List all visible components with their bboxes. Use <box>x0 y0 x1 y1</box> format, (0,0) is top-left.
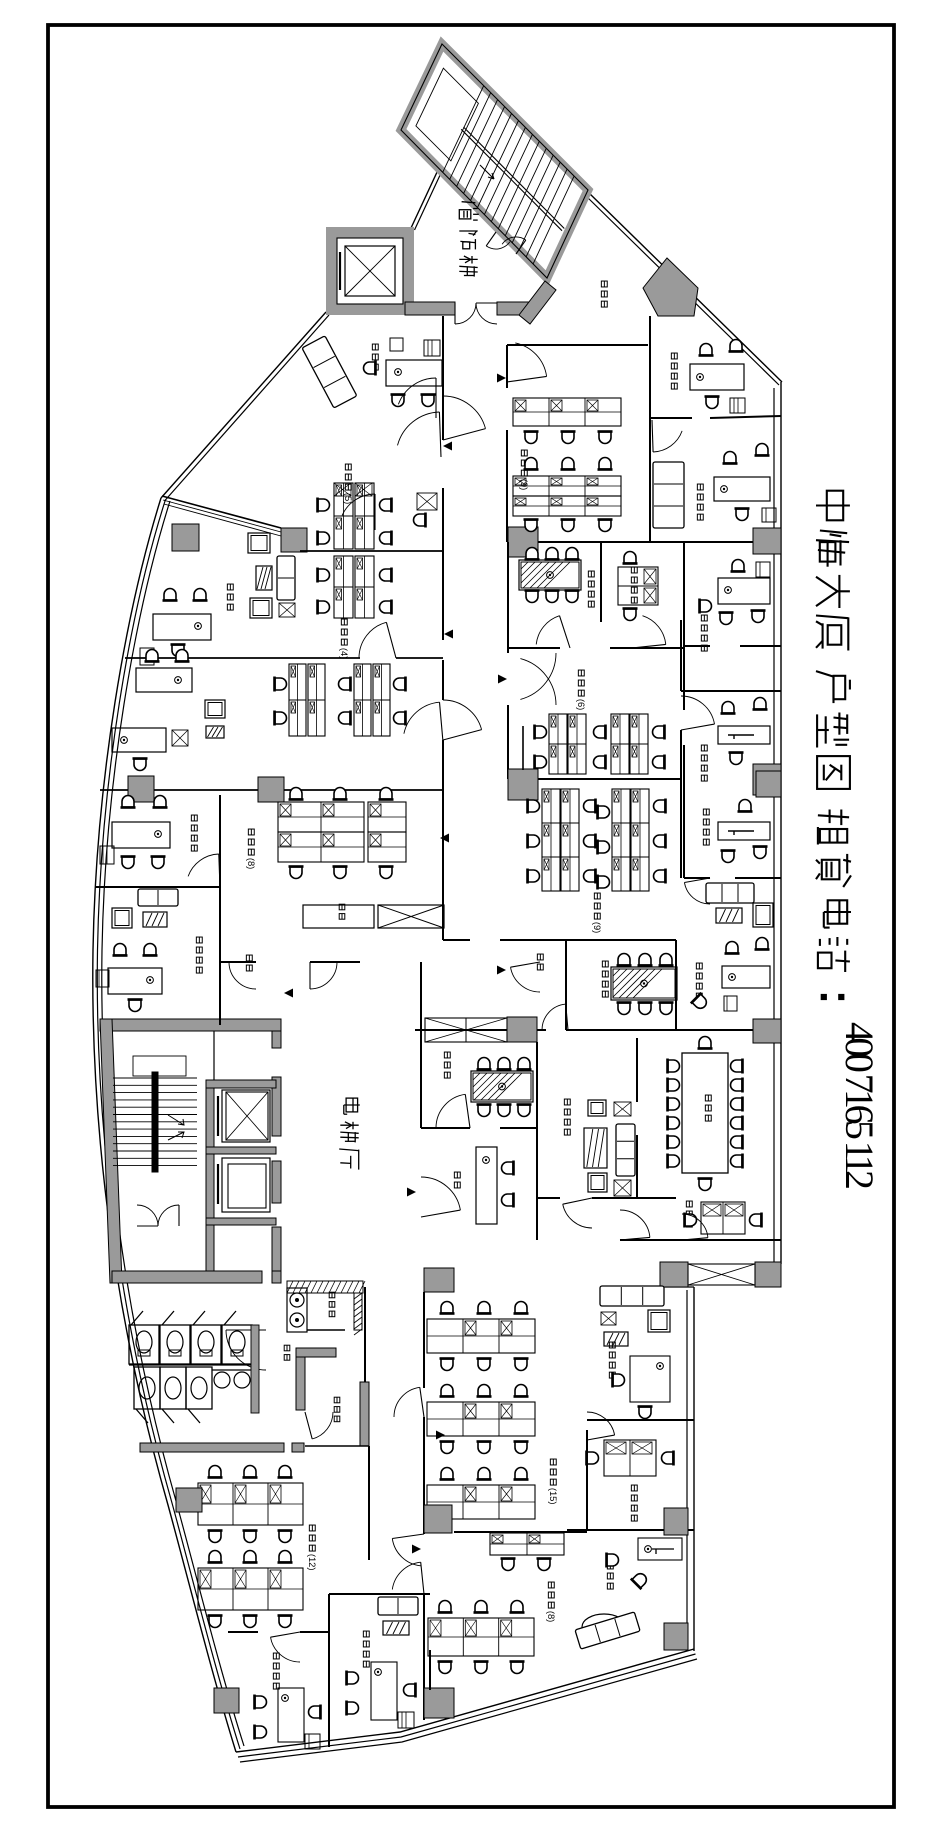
svg-text:(9): (9) <box>592 922 603 933</box>
svg-text:(8): (8) <box>246 858 257 869</box>
svg-text:(9): (9) <box>519 479 530 490</box>
svg-text:(6): (6) <box>576 699 587 710</box>
svg-text:(4): (4) <box>339 648 350 659</box>
svg-text:(8): (8) <box>546 1611 557 1622</box>
svg-text:(12): (12) <box>307 1554 318 1571</box>
svg-text:400 7165 112: 400 7165 112 <box>837 1022 882 1190</box>
svg-text:(15): (15) <box>548 1488 559 1505</box>
svg-text:(5): (5) <box>343 493 354 504</box>
